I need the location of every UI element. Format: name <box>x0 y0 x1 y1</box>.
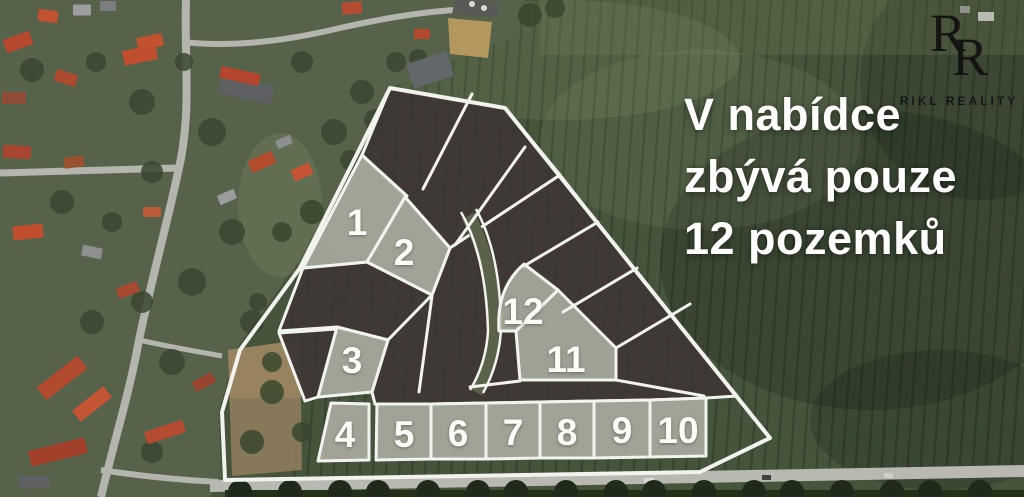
plot-label-2: 2 <box>394 232 415 273</box>
headline-line-2: zbývá pouze <box>684 146 957 208</box>
monogram-letter-2: R <box>952 30 988 84</box>
plot-label-7: 7 <box>503 412 524 453</box>
plot-label-1: 1 <box>347 202 368 243</box>
agency-logo: R R RIKL REALITY <box>898 6 1020 108</box>
plot-label-4: 4 <box>335 414 356 455</box>
plot-label-10: 10 <box>657 410 698 451</box>
plot-label-8: 8 <box>557 412 578 453</box>
headline: V nabídce zbývá pouze 12 pozemků <box>684 84 957 270</box>
plot-label-3: 3 <box>342 340 363 381</box>
rr-monogram-icon: R R <box>898 6 1020 90</box>
headline-line-3: 12 pozemků <box>684 208 957 270</box>
agency-name: RIKL REALITY <box>898 94 1020 108</box>
plot-label-9: 9 <box>612 410 633 451</box>
plot-label-5: 5 <box>394 414 415 455</box>
aerial-map: 123456789101112 V nabídce zbývá pouze 12… <box>0 0 1024 497</box>
plot-label-11: 11 <box>546 339 585 380</box>
plot-label-6: 6 <box>448 413 469 454</box>
plot-label-12: 12 <box>502 291 543 332</box>
